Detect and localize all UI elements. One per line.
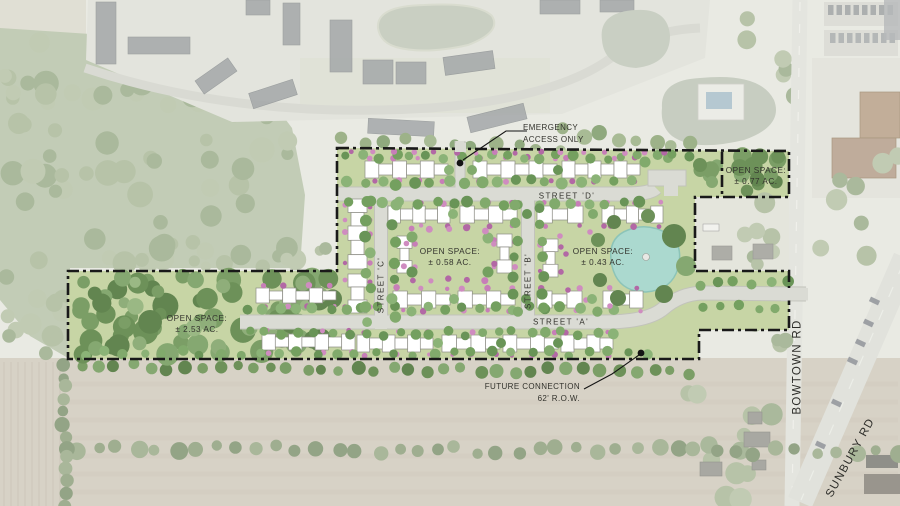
open-space-058-area: ± 0.58 AC.	[420, 257, 480, 268]
site-plan-canvas: EMERGENCY ACCESS ONLY STREET 'D' STREET …	[0, 0, 900, 506]
open-space-043-label: OPEN SPACE: ± 0.43 AC.	[573, 246, 633, 268]
street-b-label: STREET 'B'	[523, 253, 534, 309]
open-space-058-title: OPEN SPACE:	[420, 246, 480, 257]
future-connection-line1: FUTURE CONNECTION	[485, 381, 580, 393]
future-connection-line2: 62' R.O.W.	[485, 393, 580, 405]
street-a-label: STREET 'A'	[533, 317, 589, 328]
emergency-access-line1: EMERGENCY	[523, 122, 584, 134]
open-space-077-title: OPEN SPACE:	[726, 165, 786, 176]
open-space-253-title: OPEN SPACE:	[167, 313, 227, 324]
open-space-077-area: ± 0.77 AC.	[726, 176, 786, 187]
emergency-access-label: EMERGENCY ACCESS ONLY	[523, 122, 584, 145]
street-d-label: STREET 'D'	[539, 191, 595, 202]
open-space-058-label: OPEN SPACE: ± 0.58 AC.	[420, 246, 480, 268]
open-space-253-label: OPEN SPACE: ± 2.53 AC.	[167, 313, 227, 335]
street-c-label: STREET 'C'	[376, 257, 387, 313]
open-space-077-label: OPEN SPACE: ± 0.77 AC.	[726, 165, 786, 187]
future-connection-label: FUTURE CONNECTION 62' R.O.W.	[485, 381, 580, 404]
bowtown-rd-label: BOWTOWN RD	[793, 319, 804, 414]
open-space-253-area: ± 2.53 AC.	[167, 324, 227, 335]
open-space-043-title: OPEN SPACE:	[573, 246, 633, 257]
emergency-access-point	[457, 160, 464, 167]
emergency-access-line2: ACCESS ONLY	[523, 134, 584, 146]
open-space-043-area: ± 0.43 AC.	[573, 257, 633, 268]
future-connection-point	[638, 350, 645, 357]
